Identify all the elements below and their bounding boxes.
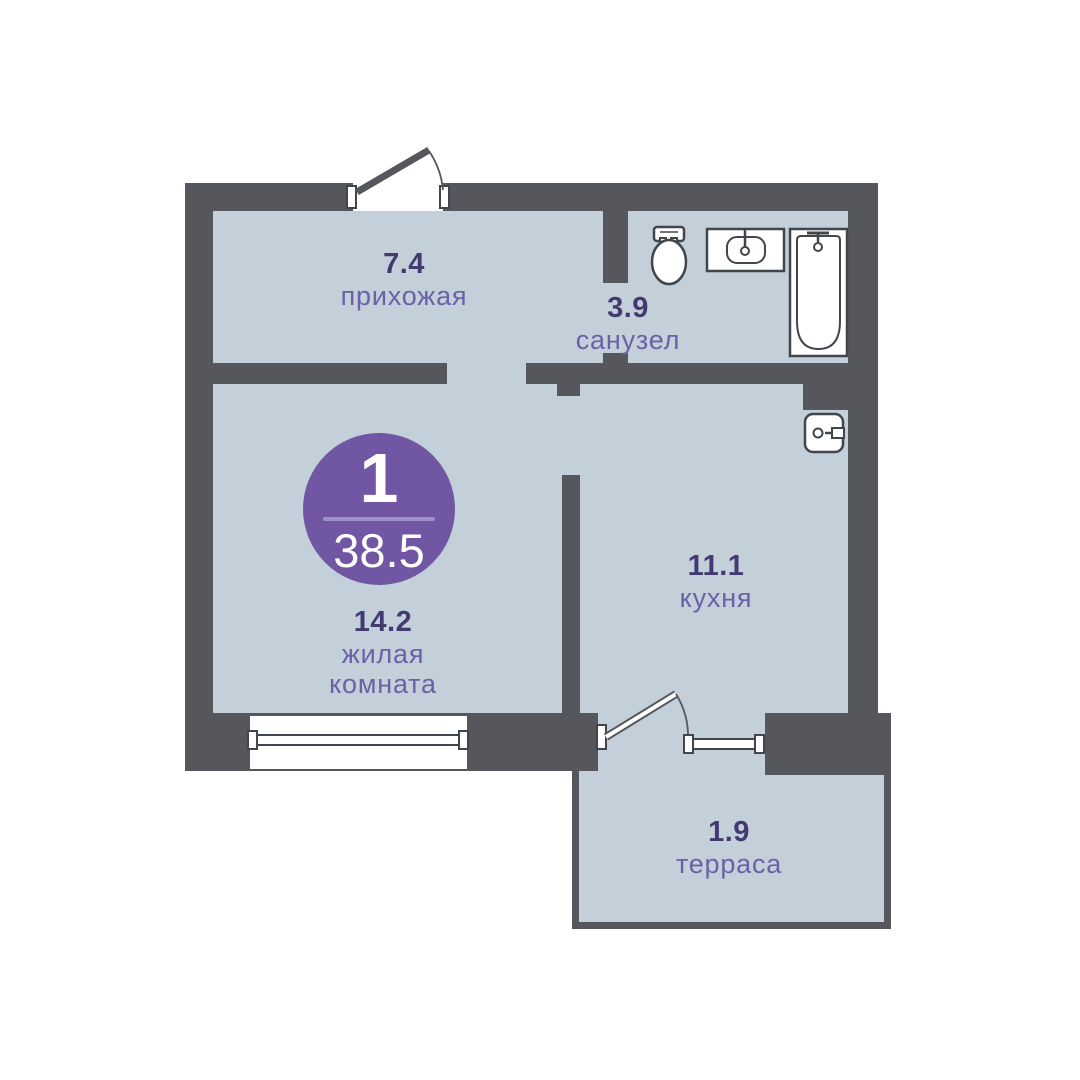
sink-icon	[707, 229, 784, 271]
room-name: санузел	[508, 325, 748, 355]
room-label-terrace: 1.9 терраса	[609, 816, 849, 879]
water-heater-icon	[805, 414, 844, 452]
room-area: 1.9	[609, 816, 849, 849]
floor-plan: 7.4 прихожая 3.9 санузел 14.2 жилая комн…	[0, 0, 1080, 1080]
balcony-window-icon	[684, 735, 764, 753]
room-area: 3.9	[508, 292, 748, 325]
room-name: терраса	[609, 849, 849, 879]
bathtub-icon	[790, 229, 847, 356]
room-area: 14.2	[263, 606, 503, 639]
room-name: жилая	[263, 639, 503, 669]
toilet-icon	[652, 227, 686, 284]
badge-divider	[323, 517, 435, 521]
room-name: прихожая	[284, 281, 524, 311]
plan-glyphs	[0, 0, 1080, 1080]
room-label-living: 14.2 жилая комната	[263, 606, 503, 699]
room-label-bathroom: 3.9 санузел	[508, 292, 748, 355]
room-label-kitchen: 11.1 кухня	[596, 550, 836, 613]
badge-room-count: 1	[360, 447, 399, 509]
window-icon	[248, 716, 468, 769]
room-area: 7.4	[284, 248, 524, 281]
badge-total-area: 38.5	[333, 528, 424, 574]
room-name: кухня	[596, 583, 836, 613]
room-area: 11.1	[596, 550, 836, 583]
room-name: комната	[263, 669, 503, 699]
apartment-badge: 1 38.5	[303, 433, 455, 585]
balcony-door-icon	[597, 694, 688, 749]
room-label-hallway: 7.4 прихожая	[284, 248, 524, 311]
entrance-door-icon	[347, 150, 449, 211]
